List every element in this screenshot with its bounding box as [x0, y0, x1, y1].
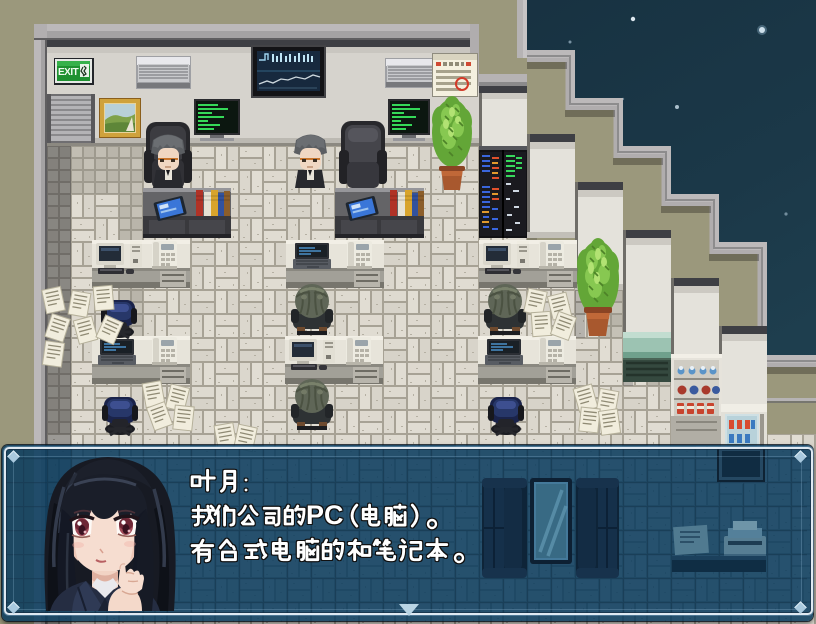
svg-text:PC: PC [306, 500, 344, 530]
